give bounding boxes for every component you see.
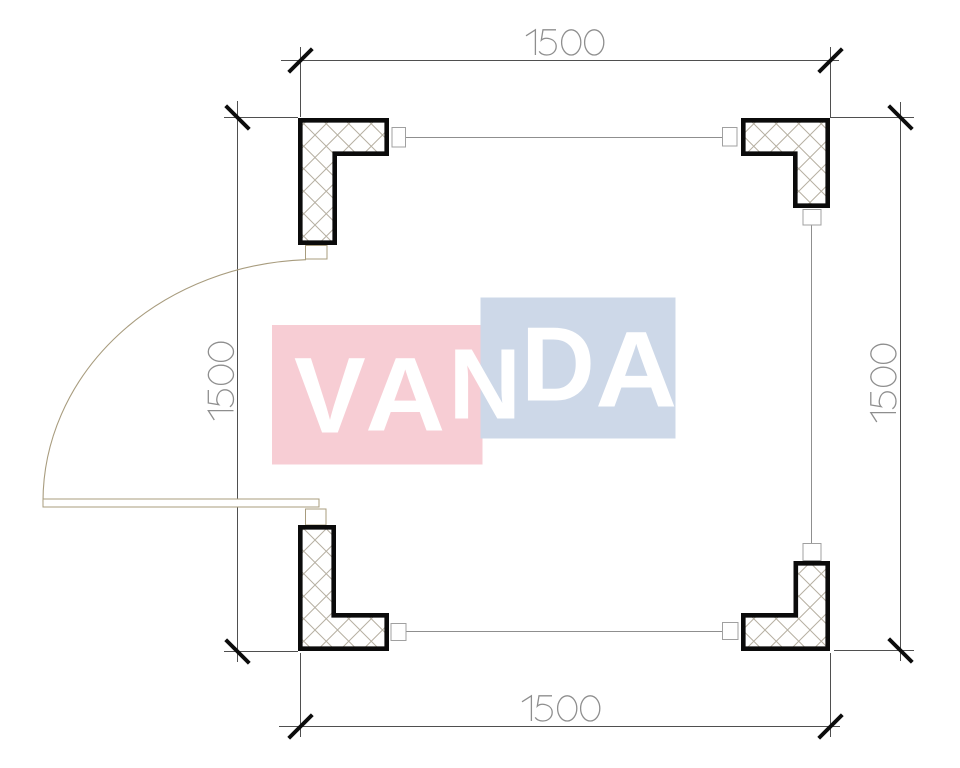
svg-text:D: D (521, 306, 595, 424)
svg-text:A: A (595, 310, 677, 430)
svg-text:A: A (365, 336, 445, 452)
svg-text:N: N (449, 329, 522, 441)
svg-text:V: V (294, 336, 366, 456)
